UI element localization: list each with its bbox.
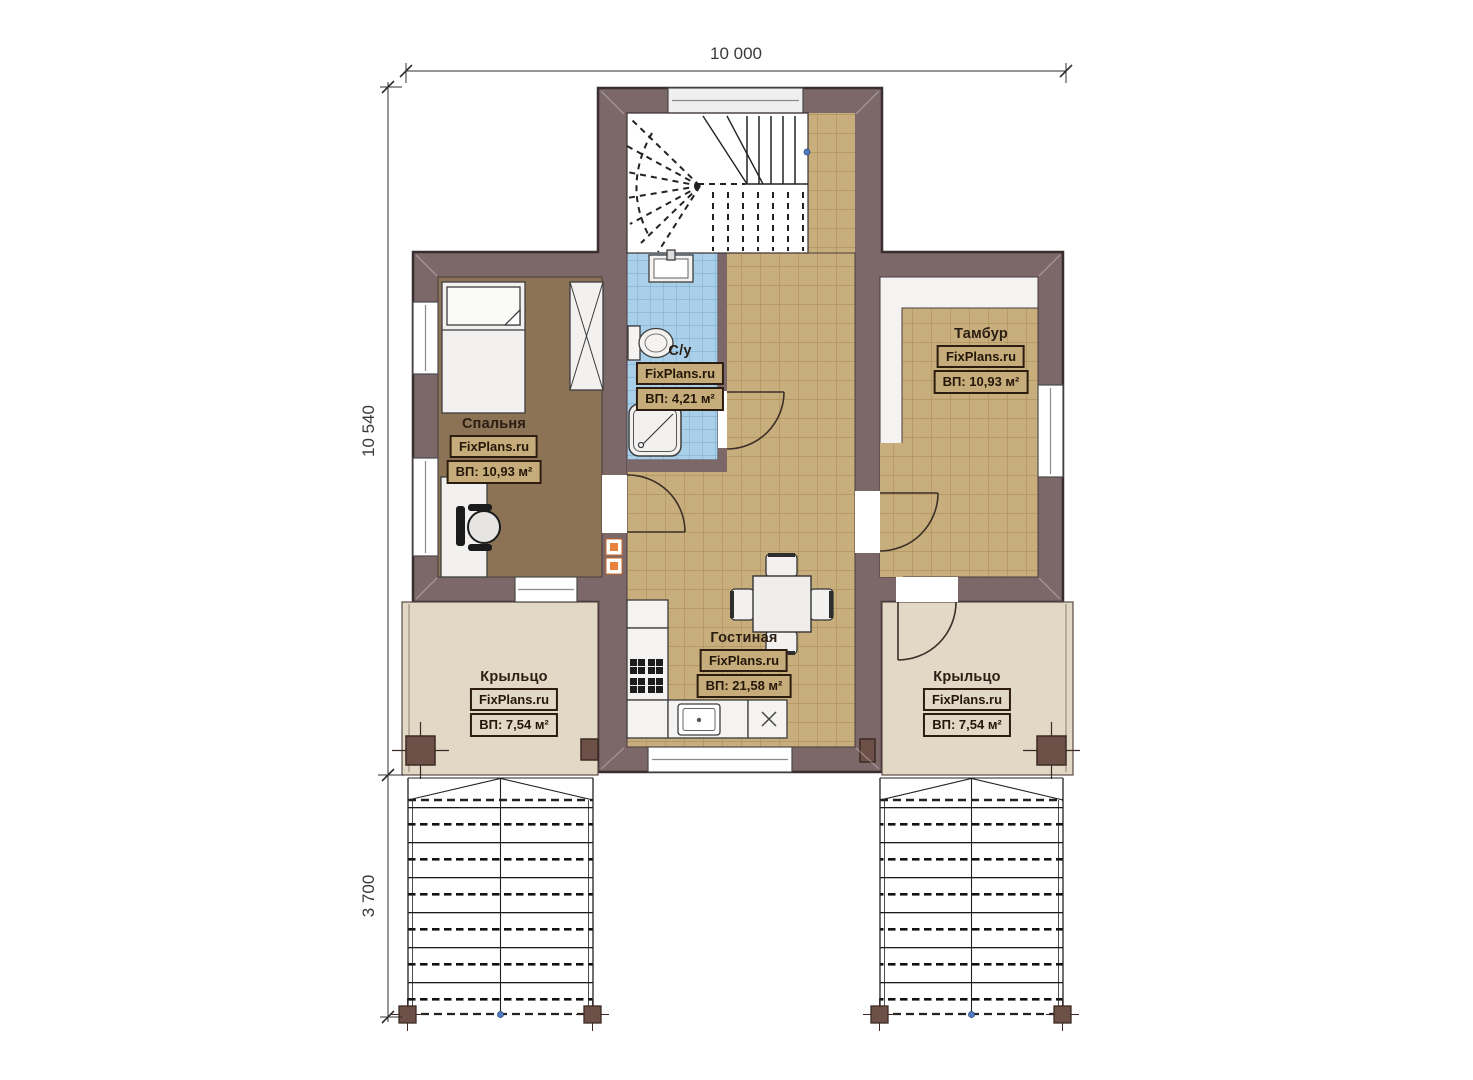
bed-pillow	[447, 287, 520, 325]
room-label-living: Гостиная FixPlans.ru ВП: 21,58 м²	[697, 631, 792, 698]
kitchen-counter-top	[627, 600, 668, 628]
porch-left-brand: FixPlans.ru	[470, 688, 558, 712]
hall-tile-strip	[808, 113, 855, 253]
floor-plan-drawing	[0, 0, 1473, 1080]
dimension-top	[400, 63, 1072, 83]
bedroom-name: Спальня	[462, 417, 526, 433]
dining-table	[753, 576, 811, 632]
porch-right-area: ВП: 7,54 м²	[923, 713, 1011, 737]
bedroom-window-lower	[413, 458, 438, 556]
vestibule-window	[1038, 385, 1063, 477]
bedroom-door-gap	[602, 475, 627, 533]
stair-post	[871, 1006, 888, 1023]
room-label-porch-right: Крыльцо FixPlans.ru ВП: 7,54 м²	[923, 670, 1011, 737]
bathroom-brand: FixPlans.ru	[636, 362, 724, 386]
vestibule-door-gap	[855, 491, 880, 553]
stair-post	[584, 1006, 601, 1023]
stairwell-floor	[627, 113, 808, 253]
dimension-width-label: 10 000	[710, 44, 762, 64]
window-handle-dot	[804, 149, 810, 155]
chair-left	[731, 589, 754, 620]
porch-left-area: ВП: 7,54 м²	[470, 713, 558, 737]
exterior-stairs-left	[391, 778, 609, 1031]
living-brand: FixPlans.ru	[700, 649, 788, 673]
wardrobe	[570, 282, 603, 390]
room-label-vestibule: Тамбур FixPlans.ru ВП: 10,93 м²	[934, 327, 1029, 394]
post-left-porch-inner	[581, 739, 598, 760]
kitchen-unit-x	[748, 700, 787, 738]
bathroom-bottom-wall	[627, 460, 727, 472]
exterior-stairs-right	[863, 778, 1079, 1031]
bathroom-name: С/у	[668, 344, 691, 360]
vestibule-tile-ext	[880, 443, 903, 577]
stairwell-window	[668, 88, 803, 113]
room-label-porch-left: Крыльцо FixPlans.ru ВП: 7,54 м²	[470, 670, 558, 737]
bedroom-area: ВП: 10,93 м²	[447, 460, 542, 484]
kitchen-counter-left	[627, 700, 668, 738]
chair-top	[766, 554, 797, 577]
room-label-bedroom: Спальня FixPlans.ru ВП: 10,93 м²	[447, 417, 542, 484]
dimension-height-label: 10 540	[359, 405, 379, 457]
dimension-left	[378, 81, 404, 1023]
stair-post	[1054, 1006, 1071, 1023]
bedroom-porch-window	[515, 577, 577, 602]
floor-plan-page: 10 000 10 540 3 700 Спальня FixPlans.ru …	[0, 0, 1473, 1080]
vestibule-name: Тамбур	[954, 327, 1008, 343]
living-name: Гостиная	[710, 631, 777, 647]
kitchen-window	[648, 747, 792, 772]
porch-right-brand: FixPlans.ru	[923, 688, 1011, 712]
bedroom-brand: FixPlans.ru	[450, 435, 538, 459]
bathroom-area: ВП: 4,21 м²	[636, 387, 724, 411]
living-area: ВП: 21,58 м²	[697, 674, 792, 698]
room-label-bathroom: С/у FixPlans.ru ВП: 4,21 м²	[636, 344, 724, 411]
dimension-stairs-label: 3 700	[359, 875, 379, 918]
porch-right-name: Крыльцо	[933, 670, 1000, 686]
stair-post	[399, 1006, 416, 1023]
vestibule-brand: FixPlans.ru	[937, 345, 1025, 369]
porch-left-name: Крыльцо	[480, 670, 547, 686]
porch-door-gap	[896, 577, 958, 602]
bedroom-window-upper	[413, 302, 438, 374]
sink	[649, 250, 693, 282]
vestibule-area: ВП: 10,93 м²	[934, 370, 1029, 394]
shower	[629, 404, 681, 456]
